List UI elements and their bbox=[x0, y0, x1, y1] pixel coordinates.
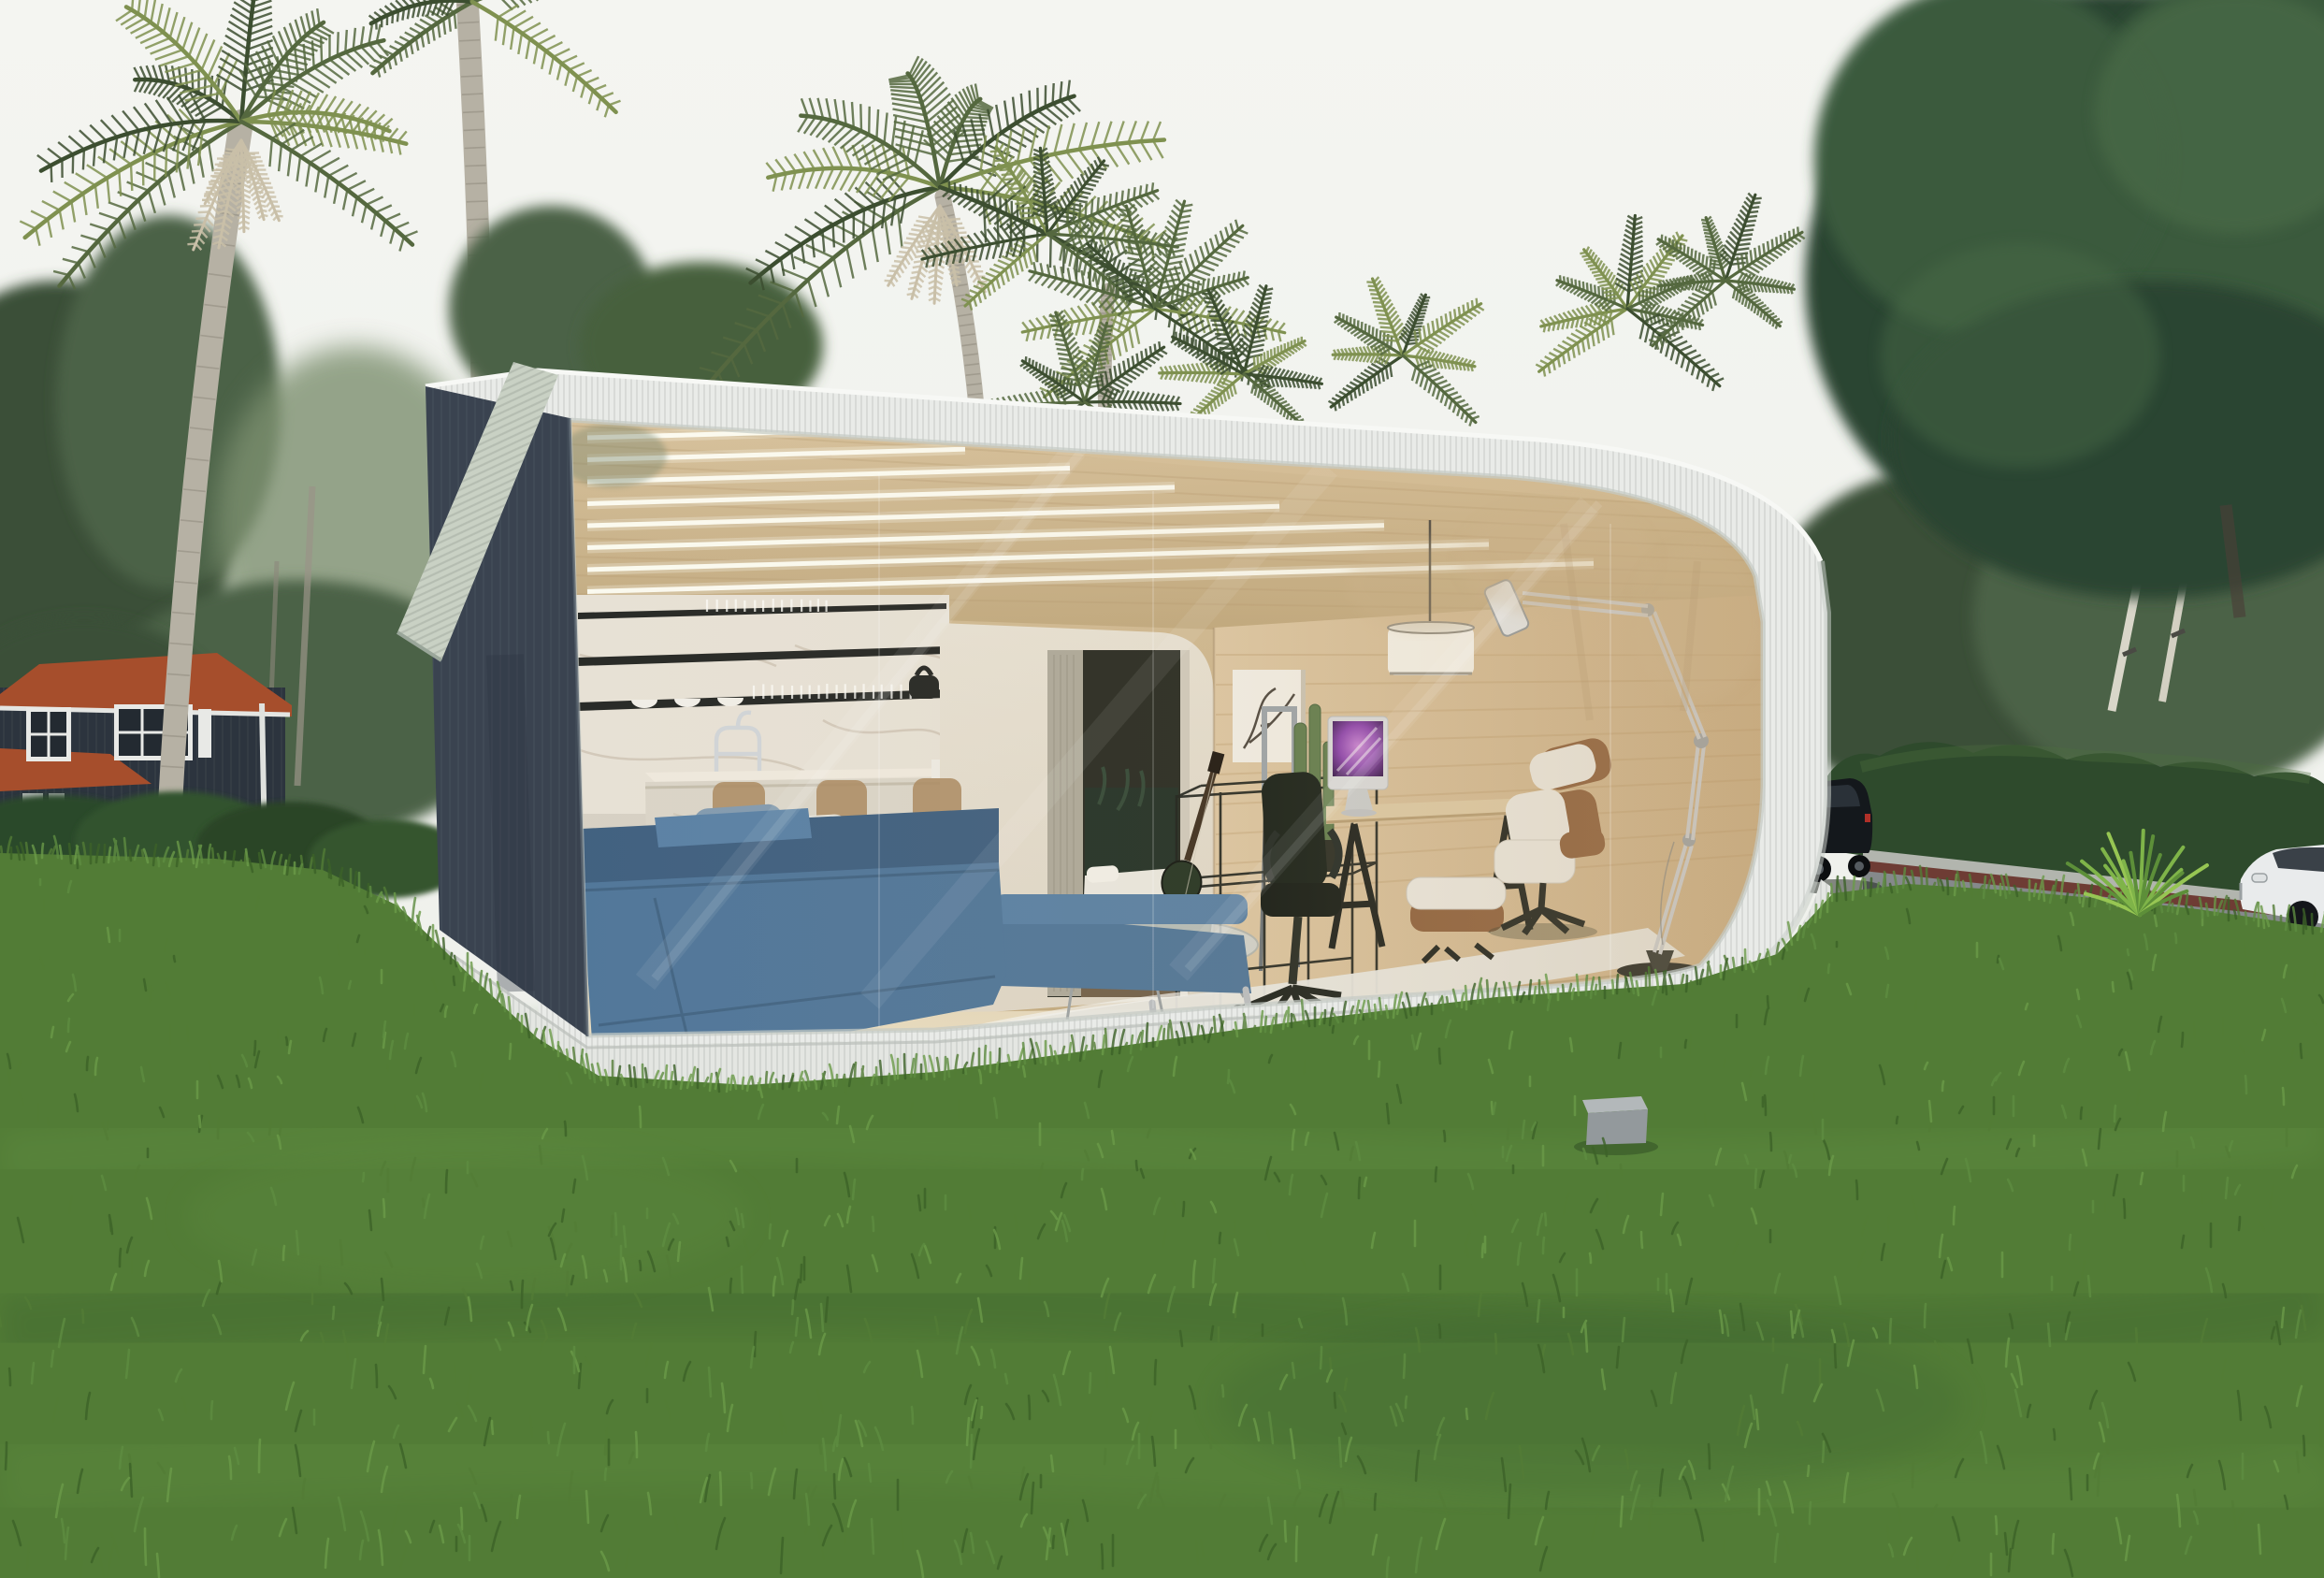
sedan-windshield bbox=[2273, 847, 2324, 872]
mow-stripe-dark bbox=[0, 1297, 2324, 1339]
palm-reflection bbox=[558, 424, 667, 487]
garden-pod-render bbox=[0, 0, 2324, 1578]
glass-reflections bbox=[558, 420, 1765, 1035]
box-front bbox=[1586, 1109, 1648, 1145]
sedan-mirror bbox=[2252, 874, 2267, 882]
render-viewport bbox=[0, 0, 2324, 1578]
suv-taillight bbox=[1865, 814, 1870, 822]
house-window-1 bbox=[26, 707, 71, 761]
suv-rim bbox=[1855, 861, 1864, 871]
house-window-3 bbox=[198, 709, 211, 758]
canopy-highlight bbox=[1880, 243, 2160, 468]
side-wall-shading bbox=[505, 655, 516, 992]
